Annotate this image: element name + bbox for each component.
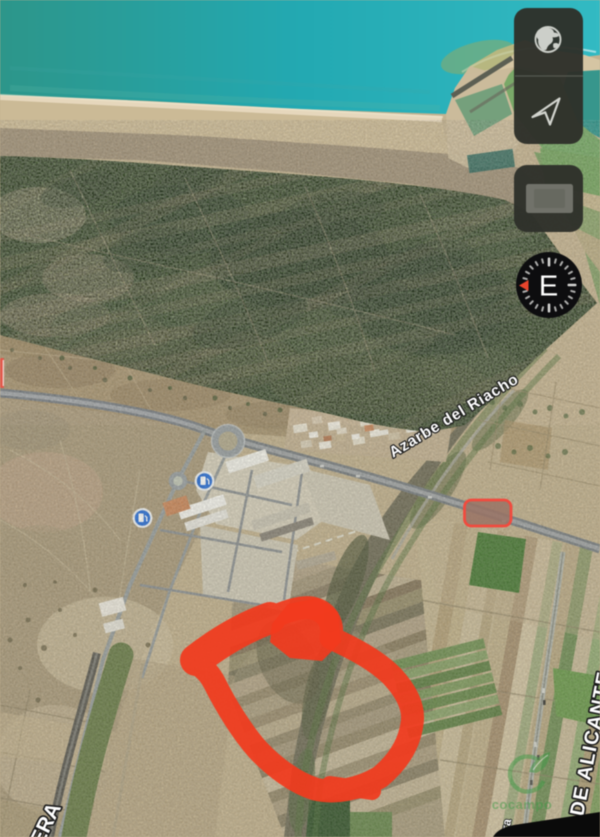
svg-text:E: E xyxy=(539,271,558,303)
svg-text:cocampo: cocampo xyxy=(492,797,553,812)
